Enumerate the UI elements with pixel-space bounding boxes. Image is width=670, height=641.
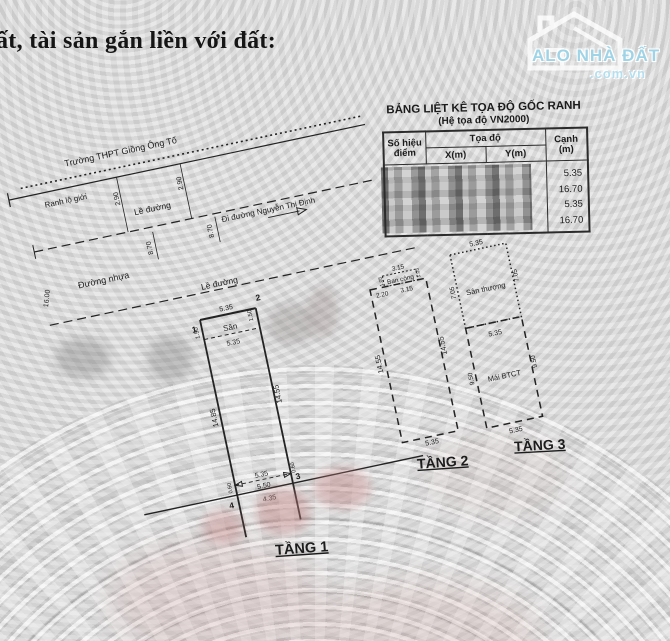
road-surface-label: Đường nhựa bbox=[77, 270, 130, 291]
pixelated-redaction bbox=[381, 164, 533, 234]
floor2-width-dim: 5.35 bbox=[425, 438, 440, 448]
right-side-dim: 14.55 bbox=[271, 384, 284, 404]
edge-value: 16.70 bbox=[547, 181, 583, 197]
front-width-dim: 5.35 bbox=[219, 304, 234, 314]
balcony-depth-dim: 1.05 bbox=[378, 276, 386, 287]
edge-value: 5.35 bbox=[546, 166, 582, 182]
brand-text: ALO NHÀ ĐẤT bbox=[532, 46, 660, 66]
point-2: 2 bbox=[255, 292, 262, 303]
boundary-coordinates-table: Số hiệu điểm Tọa độ Cạnh (m) X(m) Y(m) 5… bbox=[382, 126, 591, 237]
floor2-side-dim: 14.55 bbox=[436, 336, 449, 356]
road-width-dim: 8.70 bbox=[206, 223, 216, 238]
floor3-label: TẦNG 3 bbox=[514, 436, 566, 455]
redacted-xy-values bbox=[384, 161, 548, 236]
sidewalk-width-dim: 2.90 bbox=[113, 191, 123, 206]
school-label: Trường THPT Giồng Ông Tố bbox=[64, 135, 178, 169]
floor1-label: TẦNG 1 bbox=[275, 538, 329, 559]
floor2-outline bbox=[370, 278, 458, 442]
edge-length-values: 5.35 16.70 5.35 16.70 bbox=[546, 160, 590, 233]
edge-value: 16.70 bbox=[548, 212, 584, 228]
redaction-blob bbox=[148, 336, 192, 382]
roof-depth-dim: 9.50 bbox=[467, 372, 477, 386]
direction-label: Đi đường Nguyễn Thị Định bbox=[221, 196, 316, 225]
floor3-width-dim: 5.35 bbox=[469, 239, 484, 249]
back-width-dim: 5.35 bbox=[254, 470, 269, 480]
balcony-label: Ban công bbox=[386, 274, 415, 287]
plot-left-side bbox=[200, 320, 246, 537]
yard-label: Sân bbox=[222, 322, 238, 334]
yard-depth-dim: 1.50 bbox=[247, 308, 255, 321]
redaction-blob bbox=[308, 286, 338, 338]
road-length-dim: 16.00 bbox=[43, 289, 52, 307]
floor2-label: TẦNG 2 bbox=[416, 452, 469, 472]
roof-label: Mái BTCT bbox=[487, 368, 522, 384]
document-title-fragment: ất, tài sản gắn liền với đất: bbox=[0, 28, 276, 55]
edge-value: 5.35 bbox=[547, 197, 583, 213]
alonhadat-watermark: ALO NHÀ ĐẤT .com.vn bbox=[514, 4, 664, 90]
mid-width-dim: 5.35 bbox=[488, 329, 503, 339]
road-width-dim: 8.70 bbox=[146, 240, 156, 255]
sidewalk-edge-dashed-line bbox=[34, 179, 376, 252]
redaction-blob bbox=[203, 510, 243, 544]
point-4: 4 bbox=[228, 500, 235, 511]
domain-text: .com.vn bbox=[590, 66, 646, 81]
front-left-seg-dim: 2.20 bbox=[375, 290, 389, 300]
boundary-label: Ranh lộ giới bbox=[44, 192, 88, 210]
balcony-depth-dim: 1.05 bbox=[414, 267, 422, 278]
yard-depth-dim: 1.50 bbox=[193, 326, 201, 339]
redaction-blob bbox=[314, 468, 370, 508]
terrace-label: Sân thượng bbox=[465, 280, 506, 297]
road-boundary-line bbox=[9, 124, 365, 200]
floor3-plan: 5.35 Sân thượng 7.05 7.05 5.35 Mái BTCT … bbox=[440, 233, 552, 442]
col-edge-header: Cạnh (m) bbox=[545, 127, 588, 161]
point-3: 3 bbox=[295, 471, 302, 482]
yard-width-dim: 5.35 bbox=[226, 338, 241, 348]
coordinate-table: BẢNG LIỆT KÊ TỌA ĐỘ GỐC RANH (Hệ tọa độ … bbox=[381, 100, 588, 238]
redaction-blob bbox=[56, 338, 110, 378]
floor2-side-dim: 14.55 bbox=[373, 354, 386, 374]
sidewalk-width-dim: 2.90 bbox=[176, 176, 186, 191]
roof-depth-dim: 9.50 bbox=[530, 354, 540, 368]
scanned-land-certificate: ất, tài sản gắn liền với đất: ALO NHÀ ĐẤ… bbox=[0, 0, 670, 641]
floor3-bottom-width-dim: 5.35 bbox=[509, 426, 524, 436]
col-x-header: X(m) bbox=[425, 146, 485, 163]
front-balcony-seg-dim: 3.15 bbox=[400, 285, 414, 295]
redaction-blob bbox=[256, 488, 310, 534]
terrace-depth-dim: 7.05 bbox=[511, 268, 521, 282]
col-point-header: Số hiệu điểm bbox=[383, 131, 426, 165]
col-y-header: Y(m) bbox=[485, 145, 545, 162]
road-boundary-dotted-line bbox=[21, 116, 363, 189]
sidewalk-label-top: Lề đường bbox=[133, 200, 172, 218]
back-offset-dim: 0.60 bbox=[227, 482, 235, 494]
